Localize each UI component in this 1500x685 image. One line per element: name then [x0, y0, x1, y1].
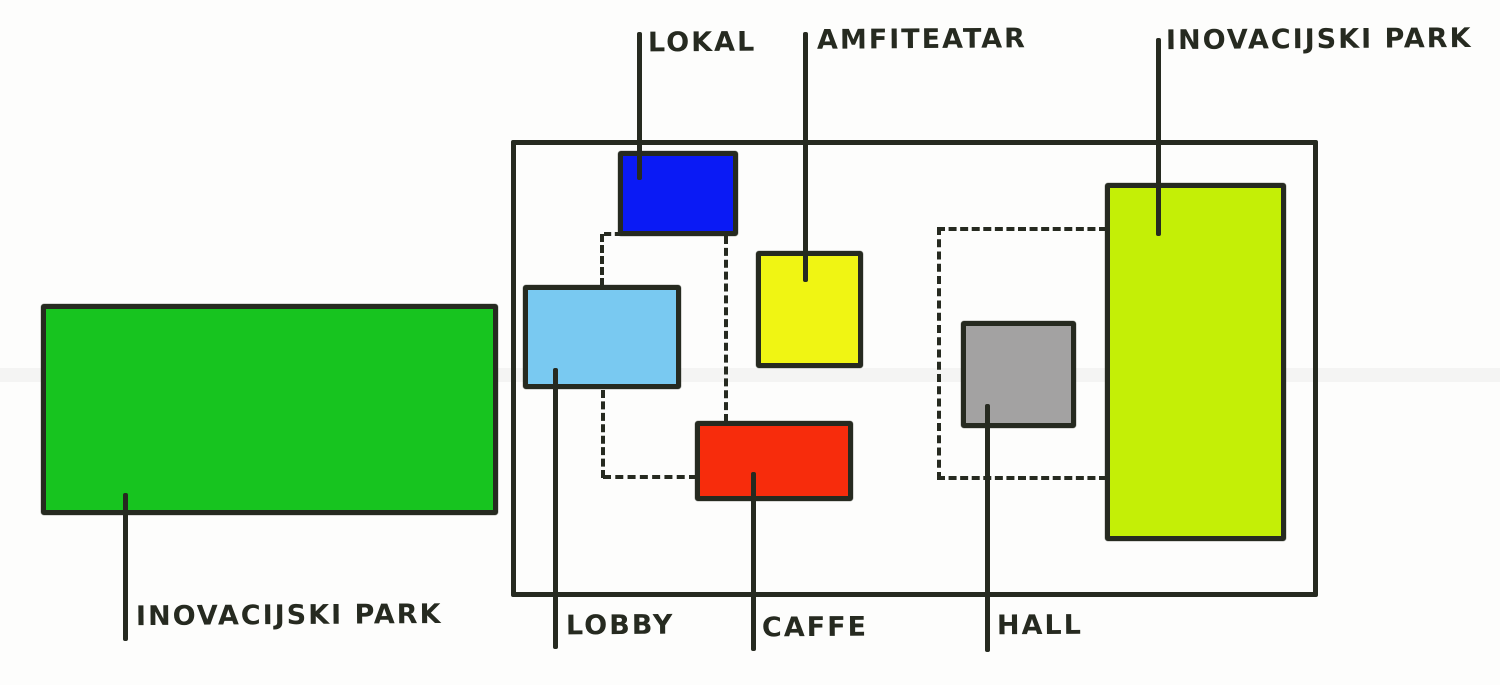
label-lobby: LOBBY	[566, 611, 675, 641]
dashed-line-lobby-down	[601, 390, 605, 478]
label-inovacijski-park-right: INOVACIJSKI PARK	[1166, 24, 1473, 56]
room-hall	[961, 321, 1076, 428]
leader-line-hall	[985, 404, 990, 652]
dashed-line-lokal-to-caffe	[724, 236, 728, 422]
leader-line-inovacijski-park-left	[123, 493, 128, 641]
label-lokal: LOKAL	[648, 28, 756, 58]
room-caffe	[695, 421, 853, 501]
label-caffe: CAFFE	[762, 613, 868, 643]
room-amfiteatar	[756, 251, 863, 368]
label-inovacijski-park-left: INOVACIJSKI PARK	[136, 600, 443, 632]
room-inovacijski-park-right	[1105, 183, 1286, 541]
dashed-line-lokal-to-lobby	[600, 234, 604, 286]
label-hall: HALL	[997, 611, 1083, 641]
leader-line-amfiteatar	[803, 32, 808, 282]
leader-line-caffe	[751, 472, 756, 651]
dashed-line-to-caffe	[603, 475, 697, 479]
room-lobby	[523, 285, 681, 389]
room-inovacijski-park-left	[41, 304, 498, 515]
leader-line-lokal	[637, 32, 642, 180]
label-amfiteatar: AMFITEATAR	[817, 24, 1027, 55]
leader-line-inovacijski-park-right	[1156, 38, 1161, 236]
leader-line-lobby	[553, 368, 558, 649]
room-lokal	[618, 151, 738, 236]
